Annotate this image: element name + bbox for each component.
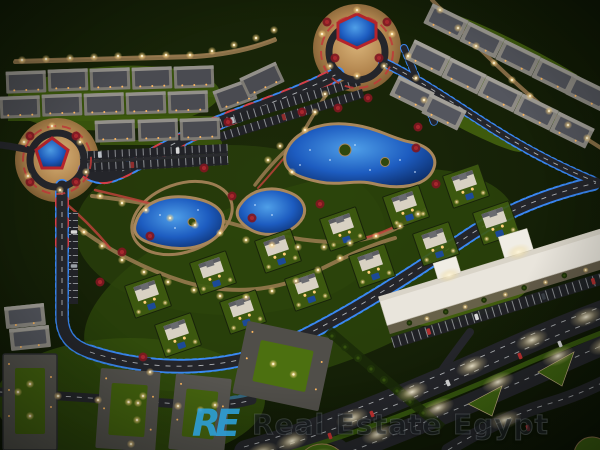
vignette-overlay bbox=[0, 0, 600, 450]
masterplan-scene bbox=[0, 0, 600, 450]
aerial-night-render: RE Real Estate Egypt bbox=[0, 0, 600, 450]
